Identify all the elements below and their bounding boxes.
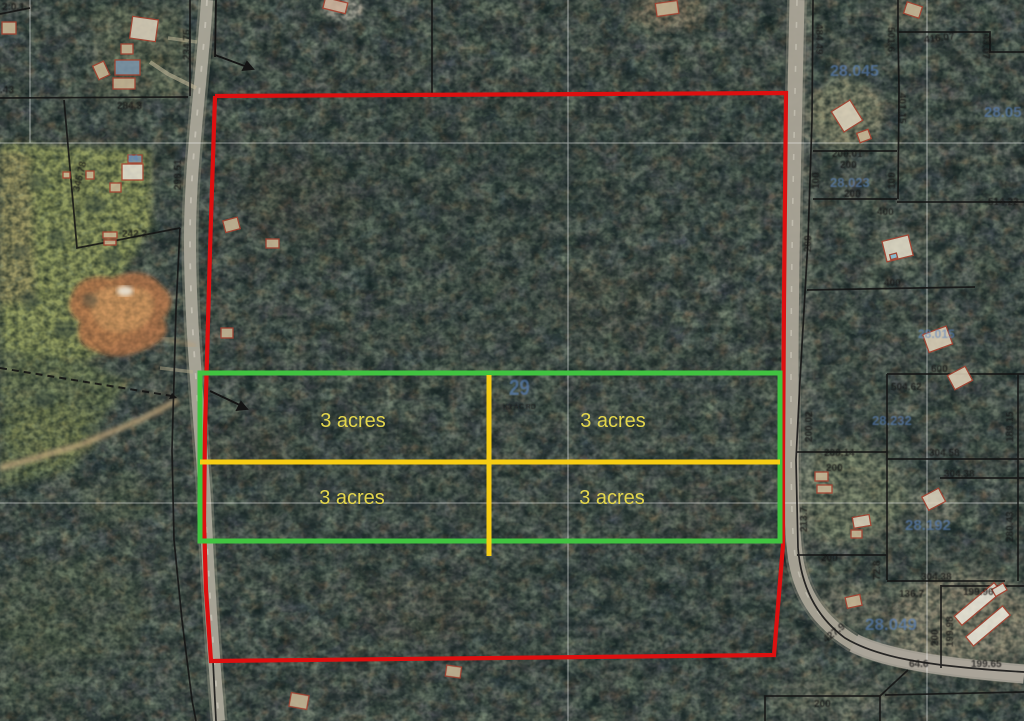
svg-text:.43: .43 [0,85,14,96]
svg-text:484.49: 484.49 [813,24,824,55]
svg-text:28.045: 28.045 [830,63,879,80]
svg-text:242.2: 242.2 [122,229,147,240]
svg-text:28.05: 28.05 [984,104,1022,121]
svg-text:200: 200 [826,463,843,474]
svg-text:600: 600 [931,364,948,375]
svg-text:304.38: 304.38 [944,469,975,480]
svg-text:213.7: 213.7 [799,507,810,532]
svg-text:200: 200 [840,160,857,171]
svg-text:28.015: 28.015 [918,327,955,341]
svg-text:298.51: 298.51 [173,159,184,190]
svg-text:43.07: 43.07 [980,34,991,59]
svg-text:200.01: 200.01 [832,149,863,160]
svg-text:501.6: 501.6 [885,27,896,52]
svg-text:200: 200 [844,189,861,200]
svg-text:29: 29 [509,377,530,401]
svg-text:234.75: 234.75 [182,29,193,60]
svg-text:3 acres: 3 acres [320,410,386,432]
svg-text:200: 200 [821,553,838,564]
svg-text:200: 200 [803,235,814,252]
svg-text:28.049: 28.049 [865,615,917,634]
svg-text:3 acres: 3 acres [579,487,645,509]
svg-text:304.38: 304.38 [921,572,952,583]
svg-text:200.14: 200.14 [824,448,855,459]
svg-text:2:0.1: 2:0.1 [2,2,25,13]
svg-text:199.65: 199.65 [971,659,1002,670]
svg-text:401.15: 401.15 [896,93,907,124]
svg-text:28.023: 28.023 [830,175,870,190]
svg-text:3 acres: 3 acres [319,487,385,509]
svg-text:200: 200 [814,699,831,710]
svg-text:24: 24 [128,153,138,163]
svg-text:200: 200 [930,629,941,646]
svg-text:100: 100 [887,172,898,189]
svg-text:284.3: 284.3 [117,101,142,112]
svg-text:72.8: 72.8 [872,560,883,580]
svg-text:199.96: 199.96 [963,587,994,598]
svg-text:136.7: 136.7 [899,589,924,600]
svg-text:400: 400 [884,278,901,289]
svg-text:3 acres: 3 acres [580,410,646,432]
svg-text:28.192: 28.192 [905,517,951,534]
svg-text:514.22: 514.22 [988,197,1019,208]
svg-text:100: 100 [811,172,822,189]
svg-text:200.02: 200.02 [804,411,815,442]
svg-text:304.58: 304.58 [929,448,960,459]
svg-text:280.43: 280.43 [1005,511,1016,542]
svg-text:64.6: 64.6 [909,659,929,670]
svg-text:504.62: 504.62 [891,382,922,393]
svg-text:K3 AC RD: K3 AC RD [503,404,536,411]
svg-text:199.98: 199.98 [945,616,956,647]
svg-text:28.232: 28.232 [872,413,912,428]
svg-text:189.15: 189.15 [1005,411,1016,442]
svg-text:400: 400 [877,207,894,218]
